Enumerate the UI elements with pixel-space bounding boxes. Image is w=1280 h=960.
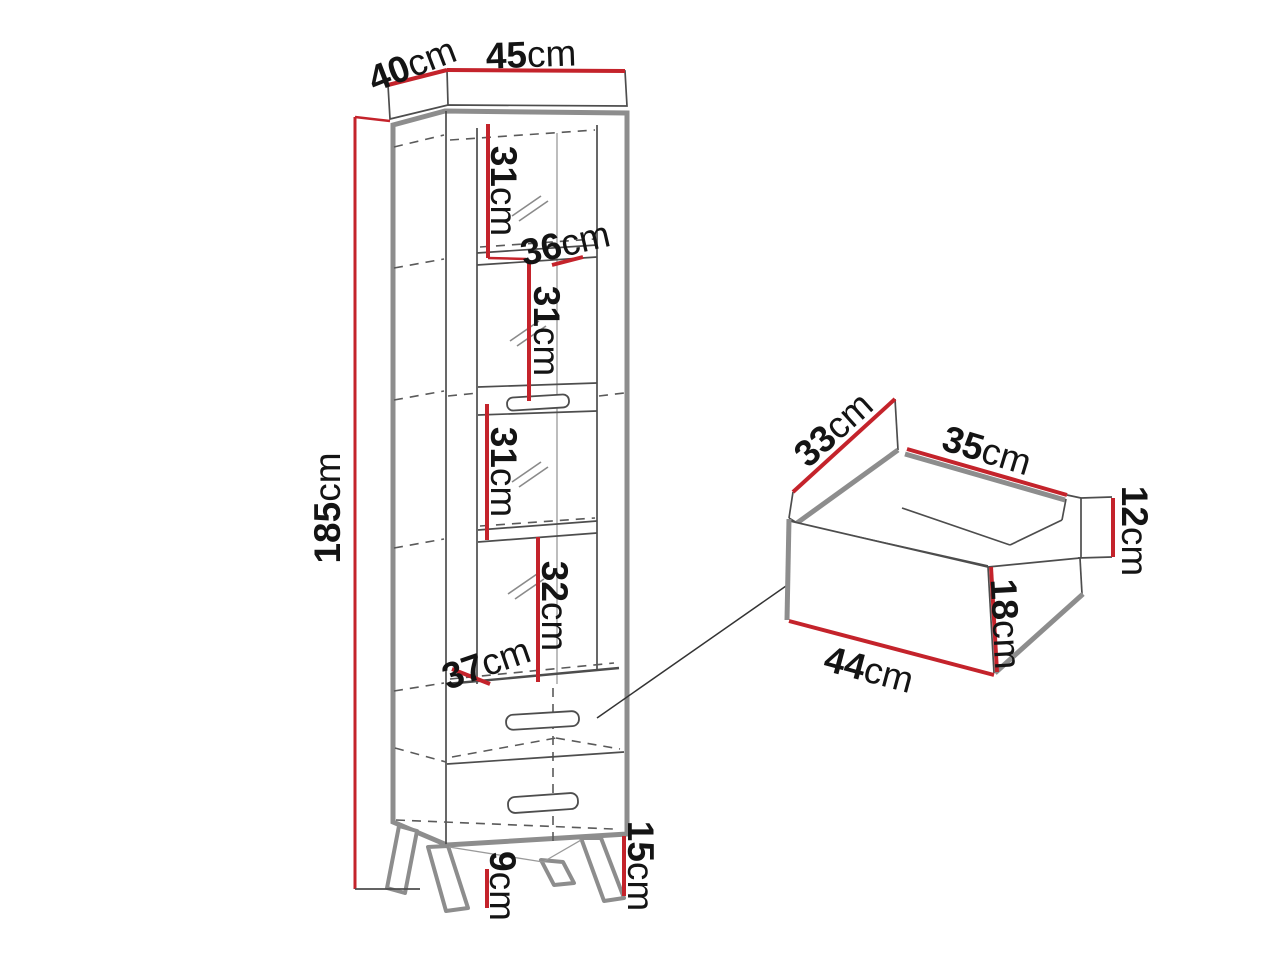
dim-plinth-height-label: 15cm — [620, 821, 661, 911]
dim-height-tick-top — [355, 117, 390, 121]
dim-leg-height-label: 9cm — [482, 851, 523, 921]
dim-drawer-side-height-label: 12cm — [1114, 486, 1155, 576]
leg-mid-right — [541, 860, 574, 885]
dim-side-height-ext-top — [1081, 497, 1112, 498]
dim-compartment-4-label: 32cm — [534, 561, 575, 651]
dim-compartment-1-label: 31cm — [483, 146, 524, 236]
cabinet-top-panel-corner — [447, 70, 448, 105]
dim-compartment-2-label: 31cm — [526, 286, 567, 376]
dimension-diagram: 40cm 45cm 185cm 31cm 36cm 31cm 31cm 32cm… — [0, 0, 1280, 960]
leg-front-left — [387, 826, 417, 893]
dim-height-label: 185cm — [307, 452, 348, 563]
leg-front-right — [581, 838, 624, 901]
cabinet-view: 40cm 45cm 185cm 31cm 36cm 31cm 31cm 32cm… — [307, 29, 661, 921]
diagram-canvas: 40cm 45cm 185cm 31cm 36cm 31cm 31cm 32cm… — [0, 0, 1280, 960]
dim-drawer-front-height-label: 18cm — [983, 578, 1029, 671]
leg-mid-left — [428, 846, 468, 911]
drawer-1-handle — [506, 711, 580, 730]
dim-compartment-1-foot — [488, 258, 526, 259]
glass-door-handle — [507, 394, 570, 411]
dim-side-height-ext-bottom — [1078, 557, 1112, 558]
dim-compartment-3-label: 31cm — [483, 427, 524, 517]
dim-width-label: 45cm — [485, 32, 577, 76]
drawer-detail-view: 33cm 35cm 12cm 18cm 44cm — [786, 384, 1155, 701]
